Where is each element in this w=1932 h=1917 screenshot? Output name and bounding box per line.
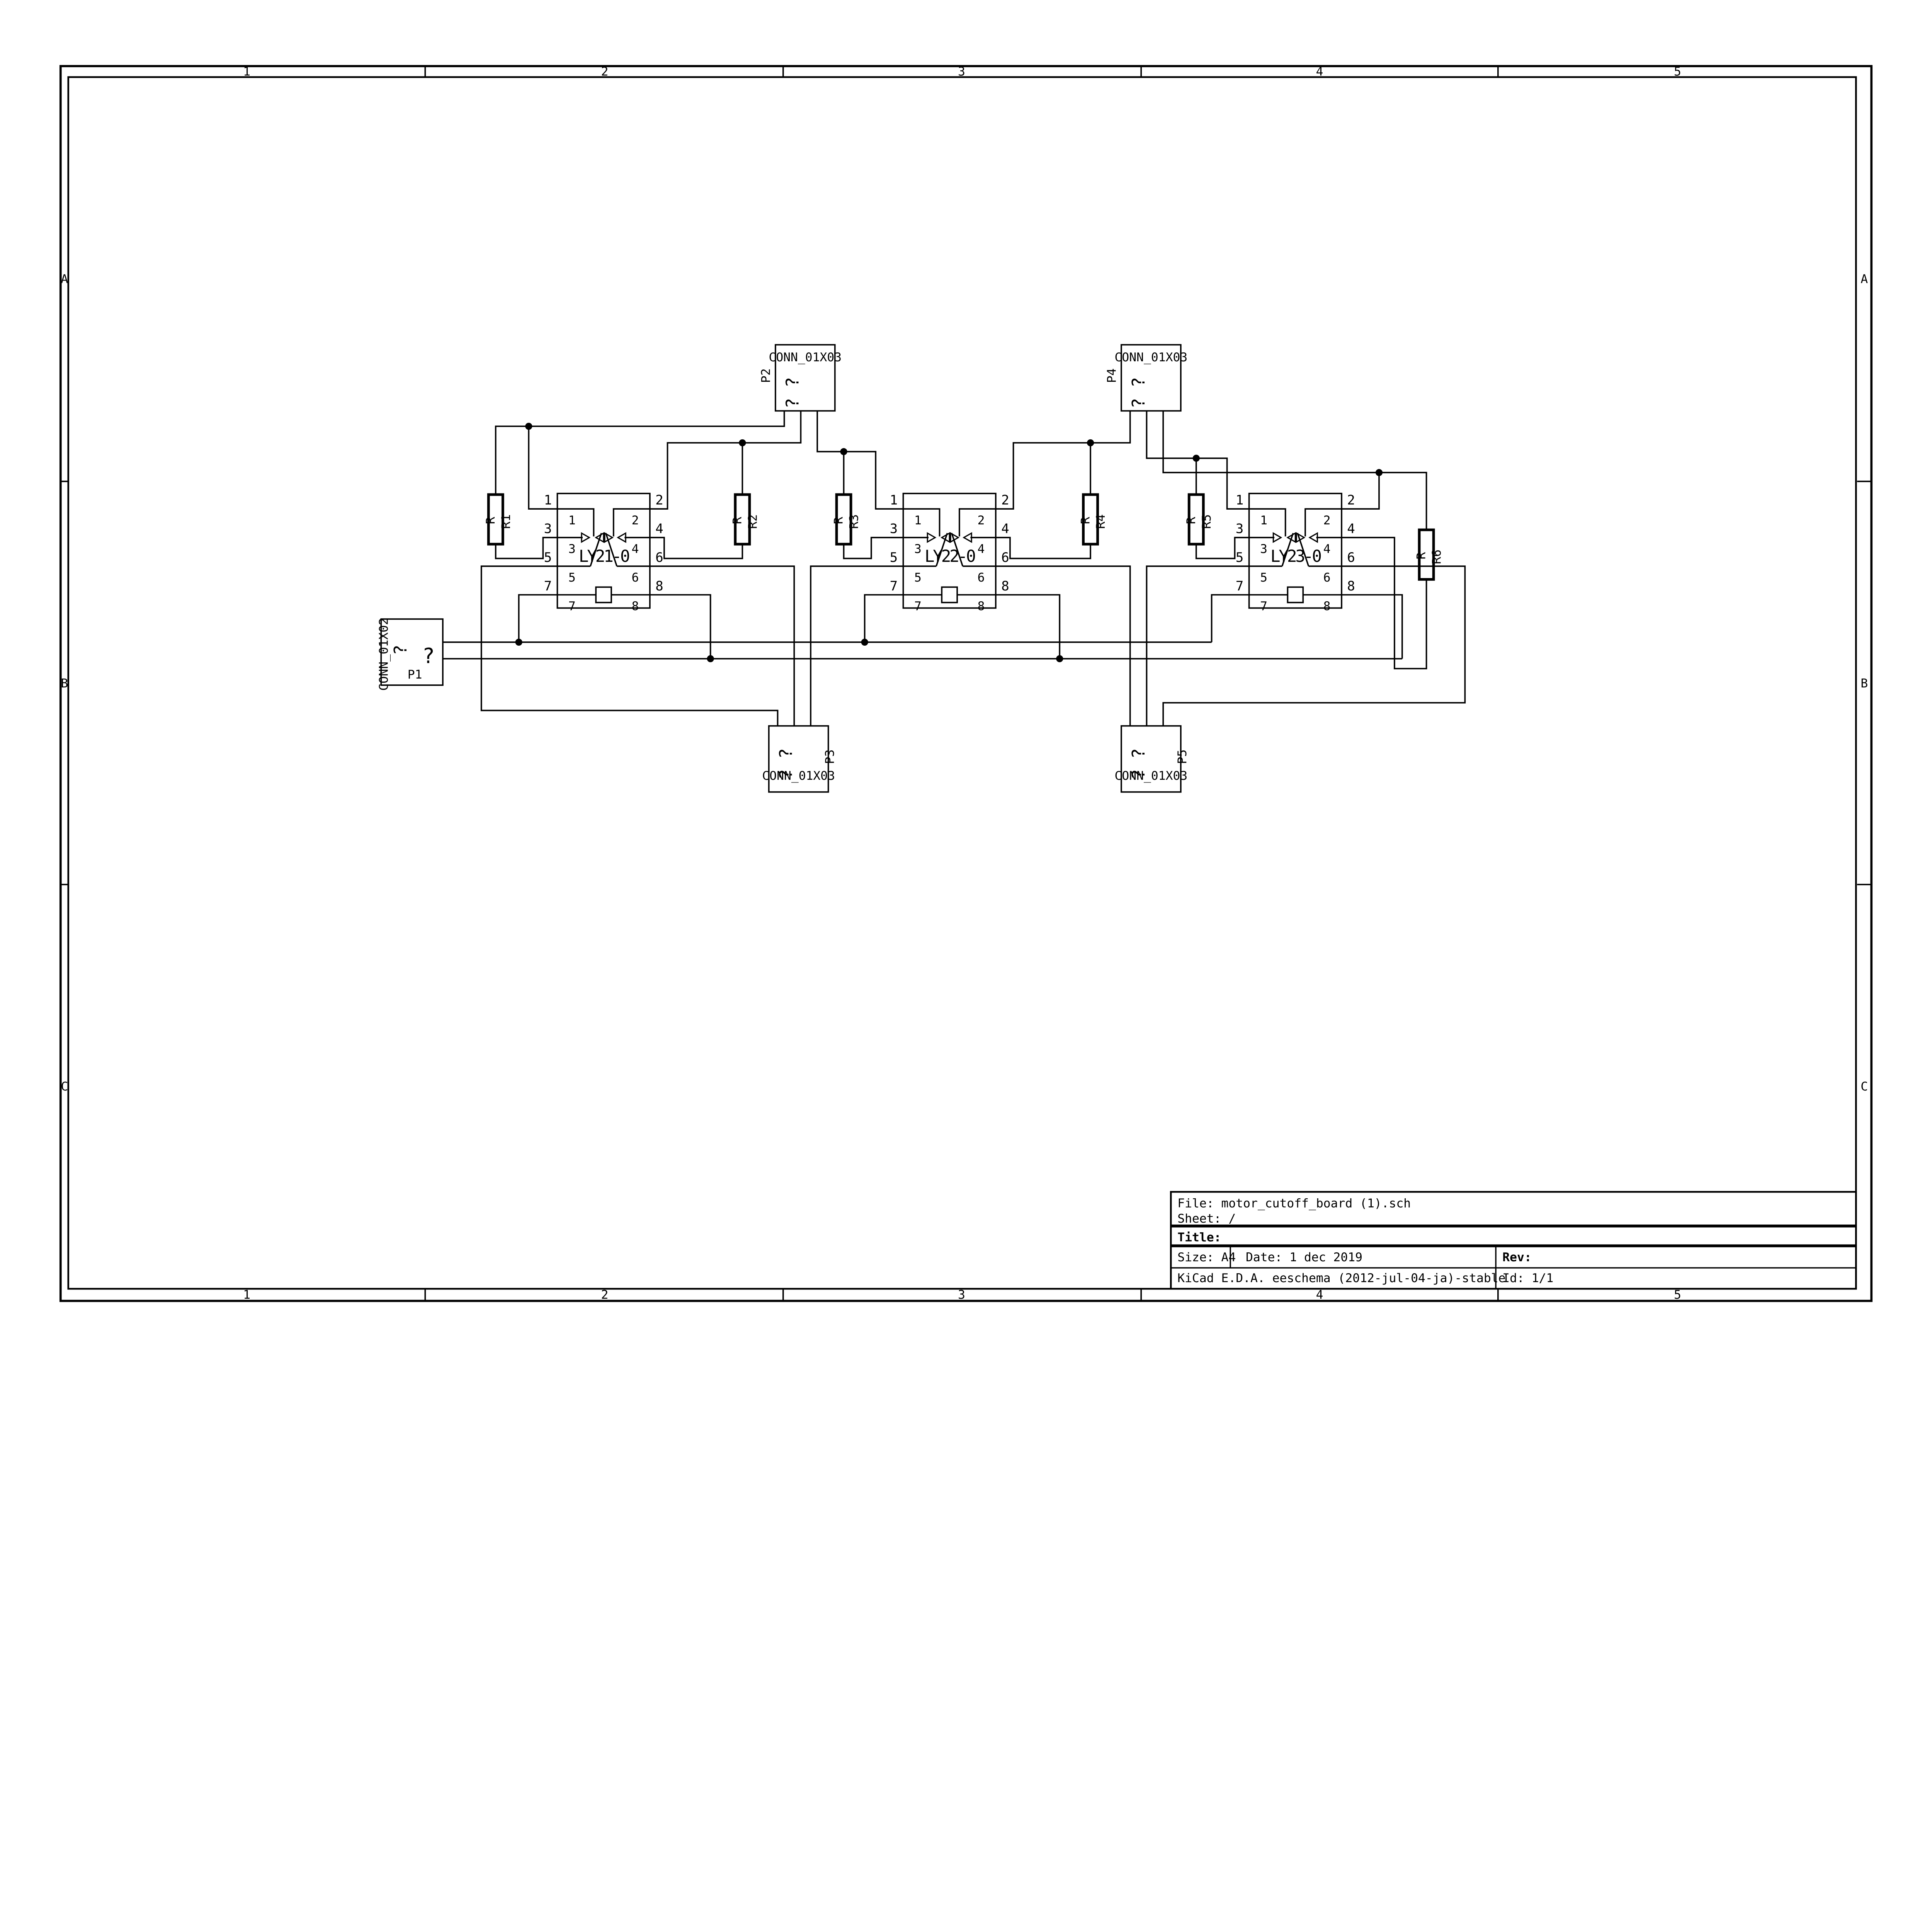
pin-number: 7 xyxy=(890,578,898,594)
connector-ref: P1 xyxy=(408,668,422,682)
resistor-R5[interactable]: RR5 xyxy=(1184,495,1214,544)
pin-number: 2 xyxy=(631,514,639,527)
zone-column-label: 2 xyxy=(601,1288,609,1302)
pin-number: 1 xyxy=(544,493,552,508)
pin-number: 2 xyxy=(1323,514,1331,527)
zone-column-label: 5 xyxy=(1674,1288,1681,1302)
zone-row-label: B xyxy=(1861,677,1868,691)
pin-number: 7 xyxy=(914,599,922,613)
pin-number: 4 xyxy=(631,542,639,556)
connector-P5[interactable]: CONN_01X03P5?? xyxy=(1115,726,1190,792)
pin-number: 6 xyxy=(978,571,985,585)
pin-number: 3 xyxy=(1236,521,1244,537)
pin-number: 8 xyxy=(978,599,985,613)
connector-value: CONN_01X03 xyxy=(1115,769,1188,783)
junction-dot xyxy=(861,639,868,646)
junction-dot xyxy=(1193,455,1200,462)
wire[interactable] xyxy=(996,595,1060,658)
titleblock-date: Date: 1 dec 2019 xyxy=(1246,1250,1362,1264)
wire[interactable] xyxy=(996,538,1090,558)
pin-number: 7 xyxy=(544,578,552,594)
eeschema-canvas: 1122334455AABBCC File: motor_cutoff_boar… xyxy=(0,0,1932,1366)
zone-row-label: A xyxy=(61,272,68,286)
junction-dot xyxy=(1056,655,1063,662)
connector-value: CONN_01X03 xyxy=(762,769,835,783)
zone-row-label: C xyxy=(1861,1080,1868,1094)
unknown-pin-glyph: ? xyxy=(1128,377,1149,387)
wire[interactable] xyxy=(650,566,794,726)
pin-number: 6 xyxy=(1347,550,1355,565)
zone-row-label: A xyxy=(1861,272,1868,286)
connector-P3[interactable]: CONN_01X03P3?? xyxy=(762,726,837,792)
relay-2[interactable]: LY22-01212343456567878 xyxy=(890,493,1009,614)
titleblock-app: KiCad E.D.A. eeschema (2012-jul-04-ja)-s… xyxy=(1177,1271,1505,1285)
resistor-ref: R1 xyxy=(499,514,513,529)
pin-number: 3 xyxy=(544,521,552,537)
connector-ref: P3 xyxy=(823,749,837,764)
pin-number: 5 xyxy=(1260,571,1267,585)
wire[interactable] xyxy=(650,538,742,558)
pin-number: 6 xyxy=(1323,571,1331,585)
contact-arrow-icon xyxy=(618,533,626,542)
junction-dot xyxy=(525,423,532,430)
pin-number: 5 xyxy=(1236,550,1244,565)
connector-P4[interactable]: CONN_01X03P4?? xyxy=(1105,345,1188,411)
relay-1[interactable]: LY21-01212343456567878 xyxy=(544,493,663,614)
contact-arrow-icon xyxy=(964,533,971,542)
pin-number: 2 xyxy=(978,514,985,527)
resistor-ref: R2 xyxy=(746,514,760,529)
contact-arrow-icon xyxy=(582,533,589,542)
titleblock-id: Id: 1/1 xyxy=(1502,1271,1553,1285)
wire[interactable] xyxy=(811,566,903,726)
schematic-sheet: 1122334455AABBCC File: motor_cutoff_boar… xyxy=(0,0,1932,1366)
resistor-ref: R3 xyxy=(847,514,861,529)
pin-number: 1 xyxy=(568,514,576,527)
unknown-pin-glyph: ? xyxy=(422,644,435,668)
resistor-ref: R5 xyxy=(1200,514,1214,529)
pin-number: 6 xyxy=(655,550,663,565)
resistor-R3[interactable]: RR3 xyxy=(832,495,861,544)
wire[interactable] xyxy=(650,595,711,658)
pin-number: 1 xyxy=(1260,514,1267,527)
contact-arrow-icon xyxy=(1273,533,1281,542)
connector-P1[interactable]: CONN_01X02P1?? xyxy=(377,618,443,691)
wire[interactable] xyxy=(996,566,1130,726)
resistor-R6[interactable]: RR6 xyxy=(1415,530,1444,579)
wire[interactable] xyxy=(996,411,1130,509)
titleblock-size: Size: A4 xyxy=(1177,1250,1236,1264)
pin-number: 3 xyxy=(890,521,898,537)
contact-arrow-icon xyxy=(927,533,935,542)
pin-number: 1 xyxy=(890,493,898,508)
pin-number: 4 xyxy=(655,521,663,537)
wire[interactable] xyxy=(1342,595,1402,658)
pin-number: 3 xyxy=(568,542,576,556)
pin-number: 4 xyxy=(978,542,985,556)
junction-dot xyxy=(1087,439,1094,446)
pin-number: 2 xyxy=(1001,493,1009,508)
connector-value: CONN_01X02 xyxy=(377,618,391,691)
unknown-pin-glyph: ? xyxy=(776,769,796,779)
pin-number: 8 xyxy=(655,578,663,594)
titleblock-title: Title: xyxy=(1177,1231,1221,1245)
zone-row-label: B xyxy=(61,677,68,691)
unknown-pin-glyph: ? xyxy=(1128,769,1149,779)
resistor-R1[interactable]: RR1 xyxy=(484,495,513,544)
junction-dot xyxy=(739,439,746,446)
pin-number: 2 xyxy=(1347,493,1355,508)
wire[interactable] xyxy=(1212,595,1249,642)
pin-number: 7 xyxy=(568,599,576,613)
relay-coil xyxy=(596,587,611,602)
relay-label: LY23-0 xyxy=(1270,547,1321,566)
unknown-pin-glyph: ? xyxy=(776,748,796,759)
pin-number: 6 xyxy=(1001,550,1009,565)
unknown-pin-glyph: ? xyxy=(390,645,411,655)
zone-column-label: 5 xyxy=(1674,65,1681,78)
pin-number: 7 xyxy=(1236,578,1244,594)
connector-P2[interactable]: CONN_01X03P2?? xyxy=(759,345,842,411)
connector-value: CONN_01X03 xyxy=(1115,350,1188,364)
zone-column-label: 1 xyxy=(243,65,250,78)
resistor-value: R xyxy=(832,517,846,524)
junction-dot xyxy=(707,655,714,662)
pin-number: 7 xyxy=(1260,599,1267,613)
wire[interactable] xyxy=(865,595,903,642)
resistor-value: R xyxy=(1184,517,1198,524)
title-block: File: motor_cutoff_board (1).sch Sheet: … xyxy=(1171,1192,1856,1289)
junction-dot xyxy=(515,639,522,646)
resistor-R2[interactable]: RR2 xyxy=(730,495,760,544)
pin-number: 8 xyxy=(1323,599,1331,613)
resistor-value: R xyxy=(1078,517,1092,524)
junction-dot xyxy=(1376,469,1383,476)
pin-number: 1 xyxy=(914,514,922,527)
pin-number: 8 xyxy=(631,599,639,613)
pin-number: 4 xyxy=(1001,521,1009,537)
pin-number: 4 xyxy=(1347,521,1355,537)
resistor-value: R xyxy=(484,517,498,524)
sheet-frame xyxy=(61,66,1871,1301)
resistor-ref: R4 xyxy=(1094,514,1108,529)
zone-column-label: 4 xyxy=(1316,1288,1323,1302)
relay-label: LY21-0 xyxy=(579,547,629,566)
relay-3[interactable]: LY23-01212343456567878 xyxy=(1236,493,1355,614)
pin-number: 6 xyxy=(631,571,639,585)
junction-dot xyxy=(840,448,847,455)
contact-arrow-icon xyxy=(1310,533,1317,542)
wire[interactable] xyxy=(496,426,529,495)
zone-column-label: 3 xyxy=(958,1288,965,1302)
connector-value: CONN_01X03 xyxy=(769,350,842,364)
wire[interactable] xyxy=(519,595,558,642)
unknown-pin-glyph: ? xyxy=(782,377,803,387)
unknown-pin-glyph: ? xyxy=(782,398,803,408)
titleblock-sheet: Sheet: / xyxy=(1177,1212,1236,1226)
unknown-pin-glyph: ? xyxy=(1128,748,1149,759)
connector-ref: P4 xyxy=(1105,368,1119,383)
wire[interactable] xyxy=(481,566,778,726)
zone-row-label: C xyxy=(61,1080,68,1094)
relay-coil xyxy=(942,587,957,602)
resistor-value: R xyxy=(1415,552,1429,560)
resistor-R4[interactable]: RR4 xyxy=(1078,495,1108,544)
zone-column-label: 3 xyxy=(958,65,965,78)
pin-number: 5 xyxy=(544,550,552,565)
wire[interactable] xyxy=(1147,566,1249,726)
pin-number: 5 xyxy=(914,571,922,585)
wire[interactable] xyxy=(1163,566,1465,726)
resistor-value: R xyxy=(730,517,744,524)
pin-number: 3 xyxy=(914,542,922,556)
zone-column-label: 1 xyxy=(243,1288,250,1302)
titleblock-rev: Rev: xyxy=(1502,1250,1531,1264)
resistor-ref: R6 xyxy=(1430,549,1444,564)
relay-label: LY22-0 xyxy=(925,547,975,566)
titleblock-file: File: motor_cutoff_board (1).sch xyxy=(1177,1196,1411,1210)
pin-number: 5 xyxy=(568,571,576,585)
pin-number: 5 xyxy=(890,550,898,565)
relay-coil xyxy=(1287,587,1303,602)
unknown-pin-glyph: ? xyxy=(1128,398,1149,408)
pin-number: 8 xyxy=(1001,578,1009,594)
connector-ref: P5 xyxy=(1175,749,1189,764)
zone-column-label: 4 xyxy=(1316,65,1323,78)
pin-number: 1 xyxy=(1236,493,1244,508)
connector-ref: P2 xyxy=(759,368,773,383)
pin-number: 8 xyxy=(1347,578,1355,594)
zone-column-label: 2 xyxy=(601,65,609,78)
pin-number: 2 xyxy=(655,493,663,508)
pin-number: 4 xyxy=(1323,542,1331,556)
pin-number: 3 xyxy=(1260,542,1267,556)
